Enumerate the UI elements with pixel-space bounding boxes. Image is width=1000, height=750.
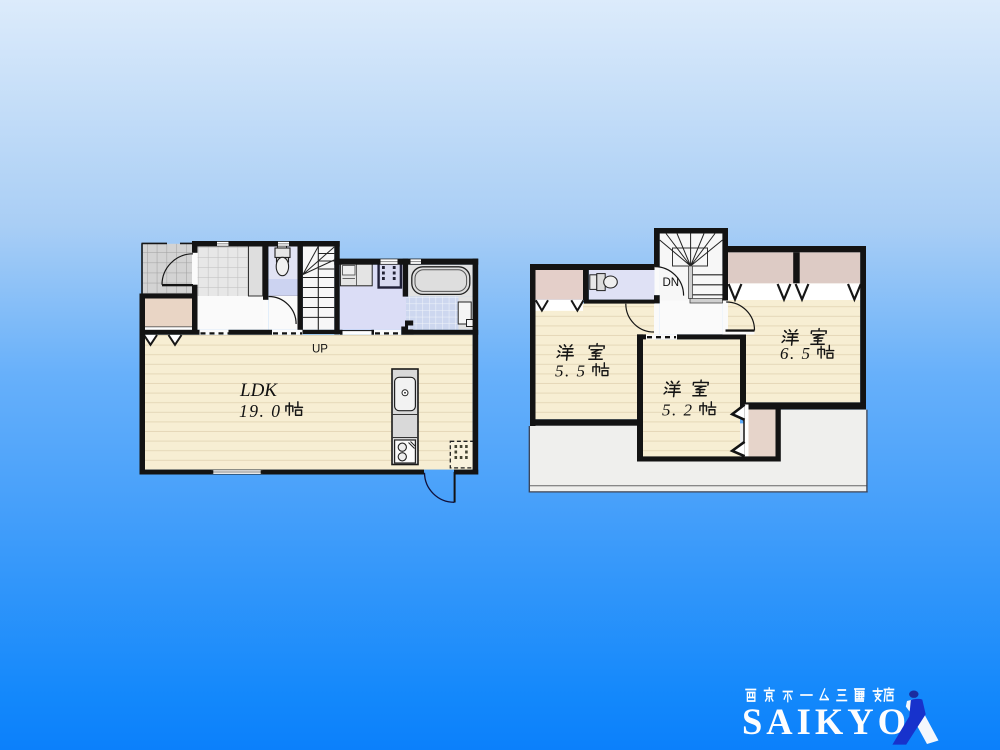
svg-text:DN: DN xyxy=(663,277,680,289)
svg-text:5. 2: 5. 2 xyxy=(662,401,694,420)
svg-text:SAIKYO: SAIKYO xyxy=(742,701,910,742)
svg-text:5. 5: 5. 5 xyxy=(555,362,587,381)
svg-text:6. 5: 6. 5 xyxy=(780,344,812,363)
svg-text:UP: UP xyxy=(312,344,328,356)
svg-text:LDK: LDK xyxy=(239,380,278,401)
svg-text:19. 0: 19. 0 xyxy=(239,401,282,421)
